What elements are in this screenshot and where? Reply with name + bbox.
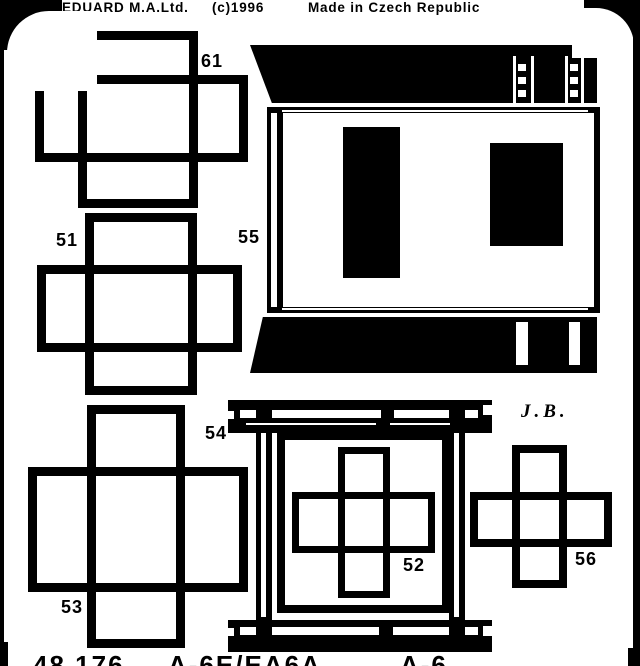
ladder-hole [518, 90, 526, 97]
ladder-hole [570, 64, 578, 71]
border-right-edge [633, 0, 640, 666]
panel-left-scribe [271, 113, 275, 307]
ladder-slit [531, 56, 534, 103]
frame-54-top-slot [240, 410, 478, 418]
frame-54-scribe [390, 423, 450, 425]
designer-signature: J.B. [521, 402, 569, 421]
border-top-edge [584, 0, 640, 7]
border-corner-top-left-round [7, 11, 97, 91]
panel-bottom-scribe [282, 308, 588, 310]
footer-suffix: A-6 [400, 652, 448, 666]
rail-stripe [454, 433, 459, 617]
part-53-fold-band [28, 467, 248, 592]
part-51-label: 51 [56, 231, 78, 249]
frame-54-tab [379, 627, 393, 635]
part-52-label: 52 [403, 556, 425, 574]
ladder-hole [570, 77, 578, 84]
part-52-fold-band [292, 492, 435, 553]
panel-left-inner-line [277, 113, 283, 307]
frame-54-end-notch [483, 405, 492, 415]
frame-54-tab [256, 625, 272, 637]
rail-stripe [261, 433, 266, 617]
band-slot [569, 322, 580, 365]
frame-54-bottom-slot [240, 627, 478, 635]
frame-54-end-notch [228, 411, 234, 419]
border-left-foot [0, 642, 8, 666]
part-55-cutout-right [490, 143, 563, 246]
part-61-label: 61 [201, 52, 223, 70]
ladder-hole [570, 90, 578, 97]
part-55-label: 55 [238, 228, 260, 246]
origin-text: Made in Czech Republic [308, 1, 480, 16]
ladder-slit [513, 56, 516, 103]
part-56-label: 56 [575, 550, 597, 568]
part-51-fold-band [37, 265, 242, 352]
part-54-label: 54 [205, 424, 227, 442]
border-right-foot [628, 648, 640, 666]
copyright-text: (c)1996 [212, 1, 264, 16]
part-55-bottom-band [250, 317, 597, 373]
frame-54-end-notch [228, 628, 234, 636]
ladder-hole [518, 64, 526, 71]
part-55-top-band [250, 45, 597, 103]
panel-top-scribe [282, 110, 588, 112]
photoetch-diagram-sheet: EDUARD M.A.Ltd. (c)1996 Made in Czech Re… [0, 0, 640, 666]
border-left-edge [0, 8, 4, 642]
ladder-slit [565, 56, 568, 103]
frame-54-tab [449, 625, 465, 637]
part-56-fold-band [470, 492, 612, 547]
frame-54-end-notch [483, 626, 492, 636]
ladder-hole [518, 77, 526, 84]
footer-kit-name: A-6E/EA6A [168, 652, 322, 666]
ladder-slit [581, 56, 584, 103]
part-55-cutout-left [343, 127, 400, 278]
footer-set-number: 48 176 [33, 652, 125, 666]
frame-54-tab [381, 410, 394, 418]
frame-54-tab [449, 408, 465, 420]
part-53-label: 53 [61, 598, 83, 616]
frame-54-tab [256, 408, 272, 420]
band-slot [516, 322, 528, 365]
